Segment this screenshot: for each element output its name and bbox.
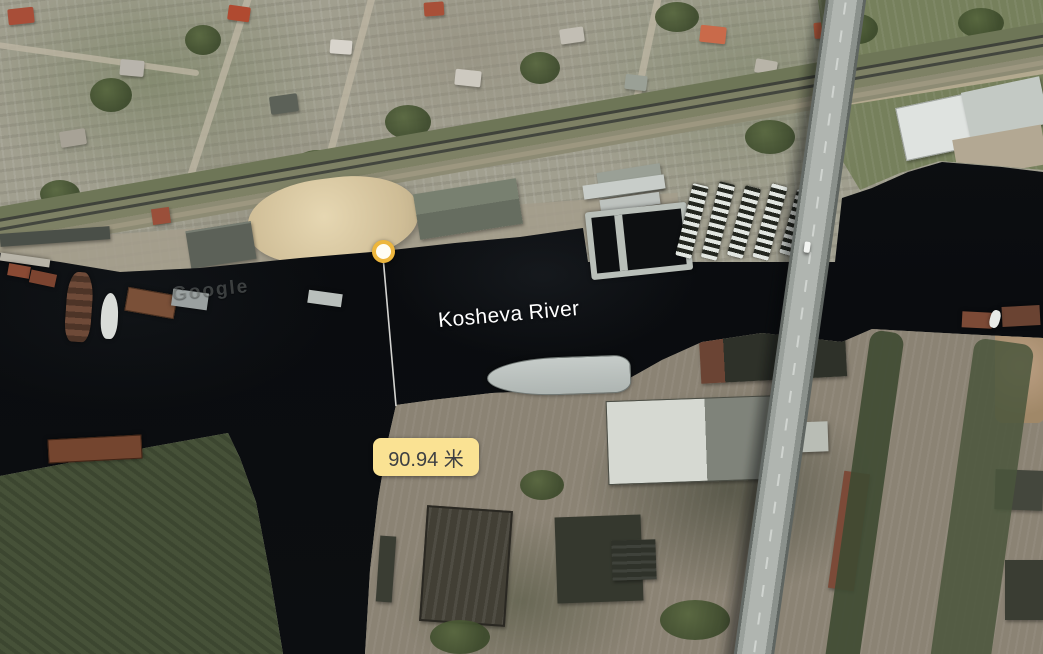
measurement-start-marker[interactable] bbox=[372, 240, 395, 263]
building bbox=[1005, 560, 1043, 620]
tree-cluster bbox=[520, 52, 560, 84]
tree-cluster bbox=[821, 329, 905, 654]
house-roof bbox=[624, 74, 648, 92]
tree-cluster bbox=[185, 25, 221, 55]
vehicle bbox=[803, 241, 810, 253]
tree-cluster bbox=[430, 620, 490, 654]
barge bbox=[962, 311, 993, 329]
barge bbox=[47, 435, 142, 464]
marina-pier bbox=[585, 202, 694, 280]
house-roof bbox=[227, 5, 251, 23]
building bbox=[376, 536, 397, 603]
tree-cluster bbox=[655, 2, 699, 32]
building bbox=[611, 539, 656, 581]
tree-cluster bbox=[660, 600, 730, 640]
house-roof bbox=[454, 69, 482, 88]
tree-cluster bbox=[745, 120, 795, 154]
house-roof bbox=[269, 93, 299, 115]
tree-cluster bbox=[520, 470, 564, 500]
house-roof bbox=[7, 7, 35, 26]
measurement-distance-label: 90.94 米 bbox=[373, 438, 479, 476]
barge bbox=[1002, 305, 1041, 327]
house-roof bbox=[424, 1, 445, 16]
satellite-map-view[interactable]: Google Kosheva River 90.94 米 bbox=[0, 0, 1043, 654]
building bbox=[419, 505, 513, 627]
house-roof bbox=[330, 39, 353, 55]
building bbox=[151, 207, 171, 225]
tree-cluster bbox=[90, 78, 132, 112]
house-roof bbox=[119, 59, 144, 77]
house-roof bbox=[699, 25, 727, 45]
